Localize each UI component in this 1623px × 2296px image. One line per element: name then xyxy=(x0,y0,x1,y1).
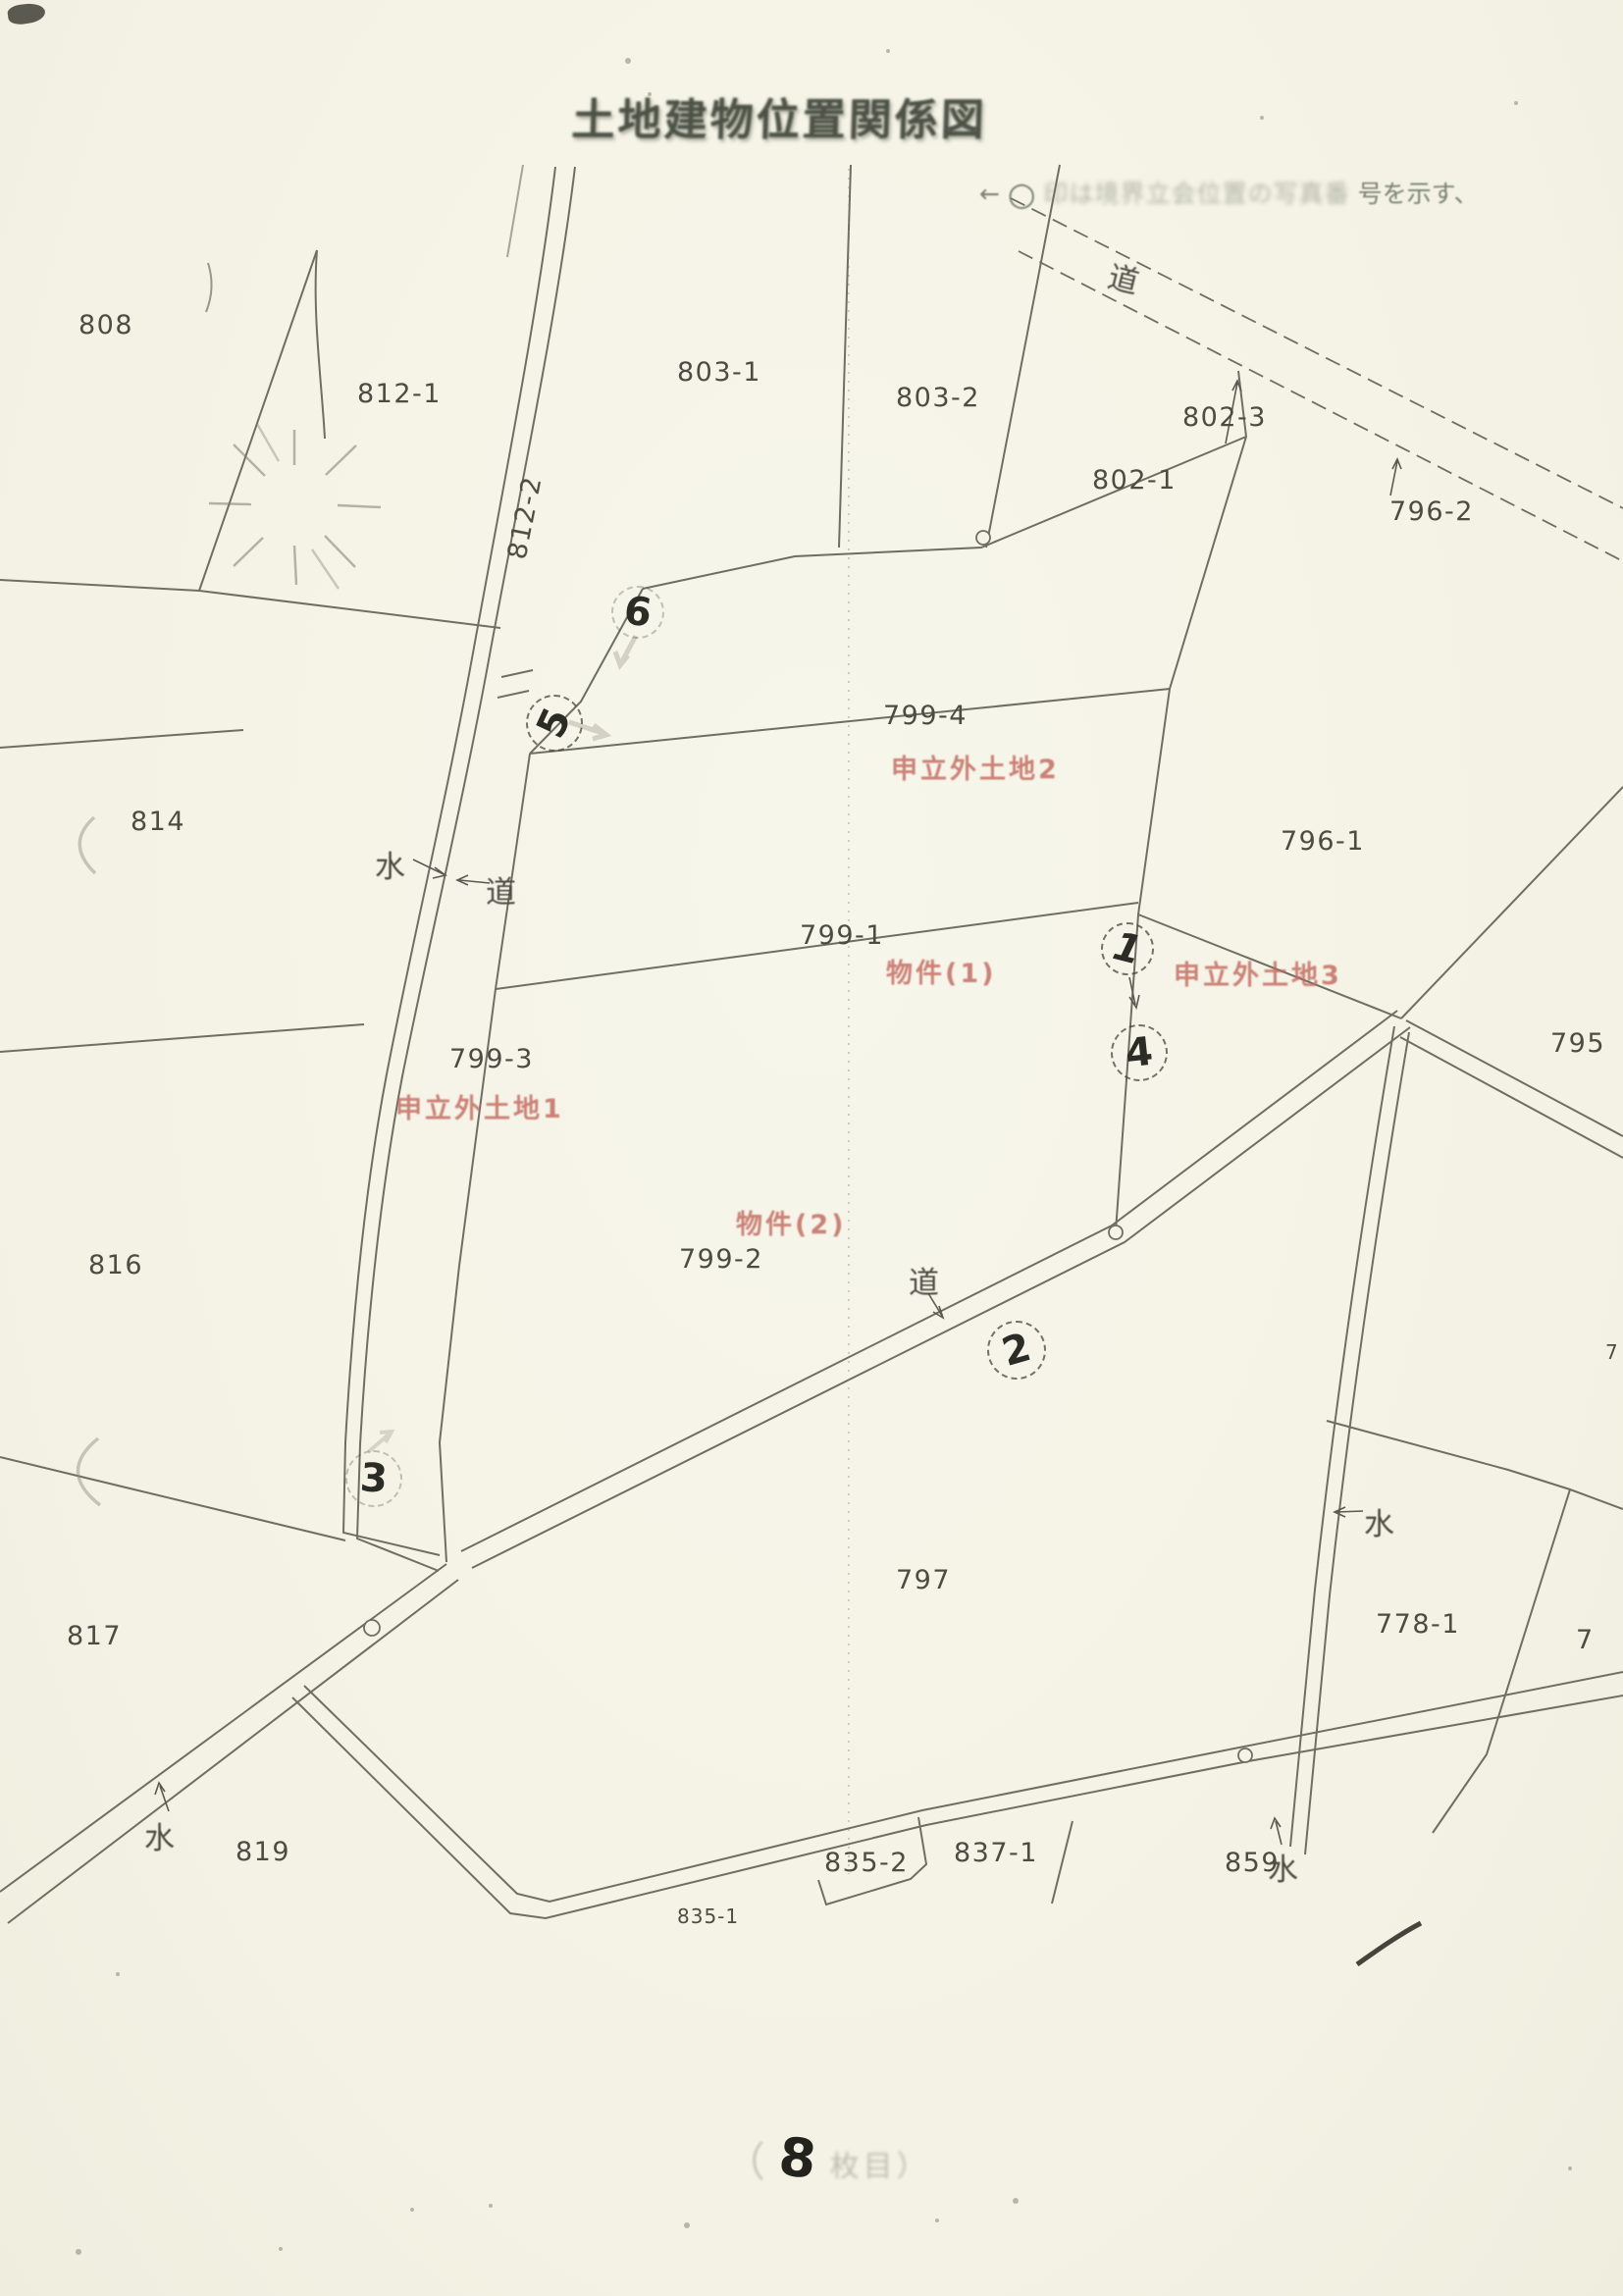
right-canal xyxy=(1290,1026,1409,1854)
red-stamp-mousitate-2: 申立外土地2 xyxy=(891,748,1060,786)
circled-number-5-digit: 5 xyxy=(528,702,580,746)
parcel-label-812-1: 812-1 xyxy=(357,379,442,409)
parcel-label-797: 797 xyxy=(896,1565,951,1595)
circled-number-6: 6 xyxy=(611,586,664,639)
map-linework xyxy=(0,0,1623,2296)
junction-circles xyxy=(364,531,1252,1762)
sheet-number: 8 xyxy=(776,2125,819,2191)
parcel-label-799-1: 799-1 xyxy=(800,920,884,951)
circled-number-2: 2 xyxy=(987,1321,1046,1380)
red-stamp-mousitate-1: 申立外土地1 xyxy=(395,1087,564,1125)
legend-faint-text: 印は境界立会位置の写真番 xyxy=(1044,180,1350,208)
circled-number-6-digit: 6 xyxy=(621,588,654,636)
water-label-mid-left: 水 xyxy=(375,842,405,886)
margin-arc-marks xyxy=(78,817,100,1505)
parcel-label-816: 816 xyxy=(88,1250,143,1280)
parcel-label-7-edge-upper: 7 xyxy=(1605,1340,1619,1364)
parcel-label-802-1: 802-1 xyxy=(1092,465,1177,496)
left-parcel-boundaries xyxy=(0,730,364,1540)
legend-clear-text: 号を示す、 xyxy=(1358,180,1479,208)
parcel-label-799-4: 799-4 xyxy=(883,701,968,731)
parcel-label-796-1: 796-1 xyxy=(1281,826,1365,857)
red-stamp-bukken-1: 物件(1) xyxy=(886,952,996,990)
legend-note: ← ○ 印は境界立会位置の写真番 号を示す、 xyxy=(979,175,1479,213)
road-label-center: 道 xyxy=(909,1258,939,1302)
red-stamp-mousitate-3: 申立外土地3 xyxy=(1174,954,1342,992)
parcel-label-803-1: 803-1 xyxy=(677,357,761,388)
parcel-label-802-3: 802-3 xyxy=(1182,402,1267,433)
parcel-label-803-2: 803-2 xyxy=(896,383,980,413)
circled-number-3: 3 xyxy=(345,1450,402,1507)
road-label-mid-left: 道 xyxy=(486,867,516,912)
parcel-label-7-edge: 7 xyxy=(1576,1625,1595,1655)
circled-number-2-digit: 2 xyxy=(997,1325,1035,1376)
scan-specks xyxy=(76,49,1572,2255)
parcel-label-799-3: 799-3 xyxy=(449,1044,534,1074)
parcel-boundaries-top xyxy=(839,165,1246,548)
circled-number-1: 1 xyxy=(1101,922,1154,975)
parcel-label-795: 795 xyxy=(1550,1028,1605,1059)
circled-number-1-digit: 1 xyxy=(1109,923,1146,973)
parcel-808-boundary xyxy=(0,250,500,628)
parcel-label-819: 819 xyxy=(236,1837,290,1867)
page-title: 土地建物位置関係図 xyxy=(571,84,988,147)
bottom-parcel-boundaries xyxy=(818,1421,1623,1905)
main-diagonal-road xyxy=(461,1011,1623,1568)
sheet-note-suffix: 枚目） xyxy=(830,2150,930,2184)
pen-stroke xyxy=(1357,1923,1421,1964)
circled-number-5: 5 xyxy=(526,695,583,752)
label-arrows xyxy=(155,381,1401,1845)
sheet-number-note: （8枚目） xyxy=(724,2127,930,2189)
waterway-bottom-left xyxy=(0,1564,458,1923)
sheet-note-paren: （ xyxy=(724,2138,765,2186)
parcel-label-814: 814 xyxy=(131,807,185,837)
water-label-right: 水 xyxy=(1364,1499,1394,1543)
water-label-bottom-left: 水 xyxy=(144,1813,175,1857)
parcel-label-796-2: 796-2 xyxy=(1389,496,1474,527)
red-stamp-bukken-2: 物件(2) xyxy=(736,1203,846,1241)
star-scribble xyxy=(209,424,381,589)
parcel-label-808: 808 xyxy=(79,310,133,340)
legend-arrow: ← xyxy=(979,180,1000,208)
water-label-bottom-right: 水 xyxy=(1268,1845,1298,1889)
parcel-label-778-1: 778-1 xyxy=(1376,1609,1460,1640)
circled-number-3-digit: 3 xyxy=(359,1455,390,1502)
parcel-label-835-1: 835-1 xyxy=(677,1905,739,1928)
parcel-label-817: 817 xyxy=(67,1621,122,1651)
parcel-label-799-2: 799-2 xyxy=(679,1244,763,1275)
top-right-road xyxy=(1011,198,1623,561)
bottom-road xyxy=(292,1672,1623,1918)
parcel-label-835-2: 835-2 xyxy=(824,1848,909,1878)
circled-number-4-digit: 4 xyxy=(1124,1029,1155,1077)
circled-number-4: 4 xyxy=(1111,1024,1168,1081)
cadastral-map-page: 土地建物位置関係図 ← ○ 印は境界立会位置の写真番 号を示す、 808 812… xyxy=(0,0,1623,2296)
legend-circle-mark: ○ xyxy=(1008,175,1036,213)
parcel-label-837-1: 837-1 xyxy=(954,1838,1038,1868)
